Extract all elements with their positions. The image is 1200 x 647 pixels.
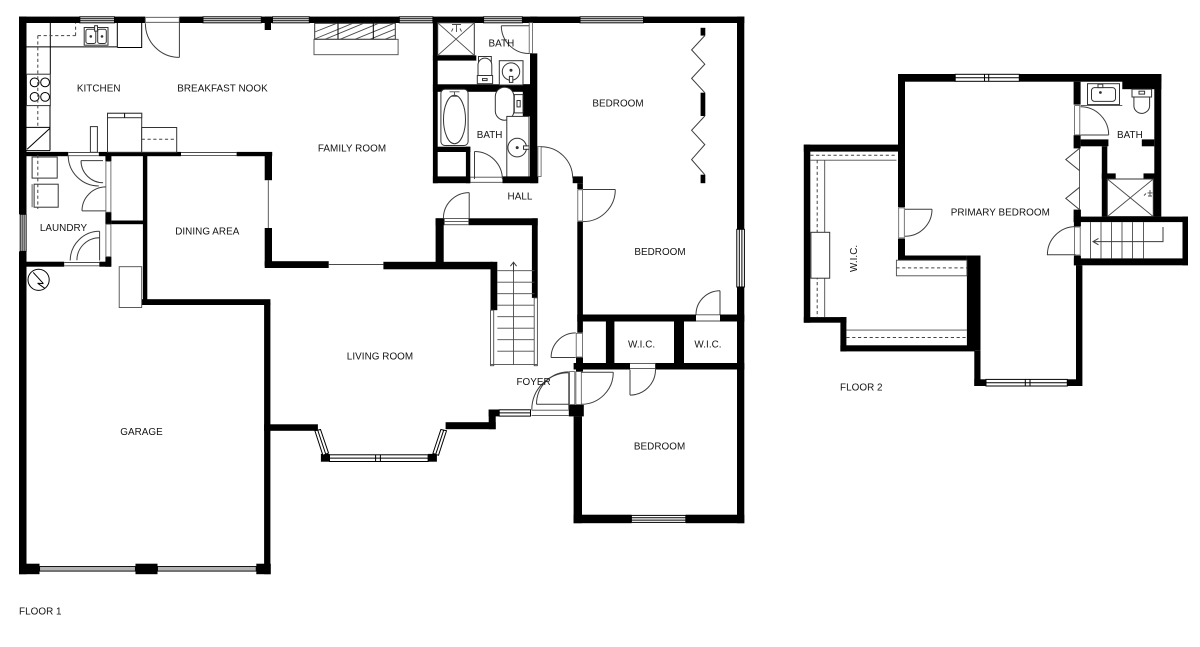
svg-text:BEDROOM: BEDROOM [634, 247, 685, 258]
svg-text:BREAKFAST NOOK: BREAKFAST NOOK [177, 84, 268, 95]
svg-text:FLOOR 2: FLOOR 2 [840, 383, 883, 394]
svg-text:DINING AREA: DINING AREA [175, 227, 240, 238]
svg-text:GARAGE: GARAGE [120, 427, 163, 438]
svg-text:W.I.C.: W.I.C. [628, 340, 655, 351]
svg-text:FLOOR 1: FLOOR 1 [19, 607, 62, 618]
svg-text:BATH: BATH [1117, 130, 1143, 141]
svg-text:BEDROOM: BEDROOM [592, 99, 643, 110]
svg-text:BATH: BATH [488, 39, 514, 50]
svg-text:HALL: HALL [508, 192, 533, 203]
svg-text:FOYER: FOYER [516, 377, 550, 388]
svg-text:LIVING ROOM: LIVING ROOM [347, 352, 413, 363]
svg-text:W.I.C.: W.I.C. [694, 340, 721, 351]
svg-text:BEDROOM: BEDROOM [634, 442, 685, 453]
svg-text:PRIMARY BEDROOM: PRIMARY BEDROOM [951, 208, 1050, 219]
svg-text:W.I.C.: W.I.C. [849, 245, 860, 272]
svg-text:BATH: BATH [477, 130, 503, 141]
svg-text:LAUNDRY: LAUNDRY [40, 223, 88, 234]
svg-text:FAMILY ROOM: FAMILY ROOM [318, 144, 386, 155]
svg-text:KITCHEN: KITCHEN [77, 84, 121, 95]
